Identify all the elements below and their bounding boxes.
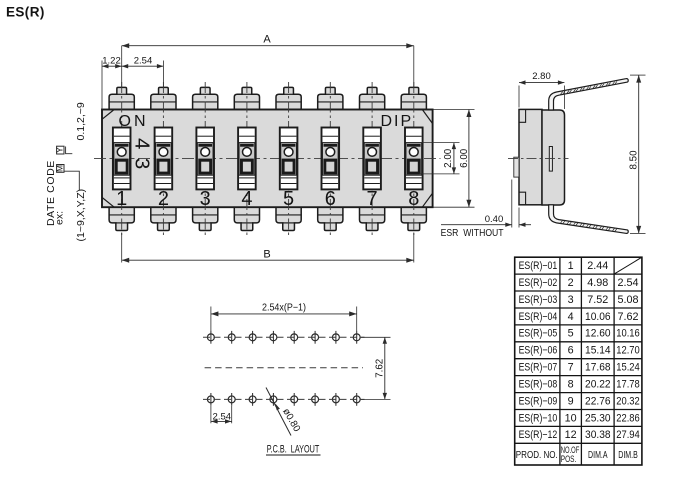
svg-text:10.16: 10.16 <box>616 328 640 340</box>
svg-text:ES(R)−01: ES(R)−01 <box>519 260 558 272</box>
svg-text:22.86: 22.86 <box>616 412 640 424</box>
svg-text:ES(R)−07: ES(R)−07 <box>519 362 558 374</box>
svg-text:10: 10 <box>565 412 577 424</box>
svg-text:4.98: 4.98 <box>587 277 608 289</box>
svg-text:12: 12 <box>565 429 577 441</box>
svg-text:8: 8 <box>568 378 574 390</box>
svg-text:ES(R): ES(R) <box>6 5 45 20</box>
svg-text:7.52: 7.52 <box>587 294 608 306</box>
svg-text:3: 3 <box>200 188 211 210</box>
svg-text:2.54: 2.54 <box>617 277 638 289</box>
svg-text:43: 43 <box>131 138 154 178</box>
svg-text:1: 1 <box>116 188 127 210</box>
svg-text:2.44: 2.44 <box>587 260 608 272</box>
svg-text:1: 1 <box>568 260 574 272</box>
svg-text:DIM.A: DIM.A <box>588 450 608 461</box>
svg-text:0.1,2,~9: 0.1,2,~9 <box>75 102 87 140</box>
svg-text:7.62: 7.62 <box>374 359 385 378</box>
svg-text:ES(R)−02: ES(R)−02 <box>519 277 558 289</box>
svg-text:ESR WITHOUT: ESR WITHOUT <box>441 227 504 239</box>
svg-text:8: 8 <box>408 188 419 210</box>
svg-text:5: 5 <box>568 328 574 340</box>
svg-text:30.38: 30.38 <box>585 429 611 441</box>
svg-text:1.22: 1.22 <box>102 56 121 67</box>
svg-text:6: 6 <box>325 188 336 210</box>
svg-text:2: 2 <box>568 277 574 289</box>
svg-text:5.08: 5.08 <box>617 294 638 306</box>
svg-text:M: M <box>55 165 65 172</box>
svg-text:27.94: 27.94 <box>616 429 640 441</box>
svg-text:(1~9,X,Y,Z): (1~9,X,Y,Z) <box>75 189 87 242</box>
svg-text:9: 9 <box>568 395 574 407</box>
svg-text:12.70: 12.70 <box>616 345 640 357</box>
svg-text:6: 6 <box>568 345 574 357</box>
svg-text:ES(R)−06: ES(R)−06 <box>519 345 558 357</box>
svg-text:ES(R)−10: ES(R)−10 <box>519 412 558 424</box>
svg-text:7.62: 7.62 <box>617 311 638 323</box>
svg-text:PROD. NO.: PROD. NO. <box>516 450 558 461</box>
svg-text:17.78: 17.78 <box>616 378 640 390</box>
svg-text:22.76: 22.76 <box>585 395 611 407</box>
svg-text:P.C.B. LAYOUT: P.C.B. LAYOUT <box>267 444 320 456</box>
svg-text:15.24: 15.24 <box>616 362 640 374</box>
svg-text:0.40: 0.40 <box>485 214 504 225</box>
svg-text:20.22: 20.22 <box>585 378 611 390</box>
svg-text:POS.: POS. <box>561 454 577 465</box>
svg-text:10.06: 10.06 <box>585 311 611 323</box>
svg-text:ES(R)−12: ES(R)−12 <box>519 429 558 441</box>
svg-text:2.54: 2.54 <box>213 412 232 423</box>
svg-text:7: 7 <box>367 188 378 210</box>
svg-text:4: 4 <box>568 311 574 323</box>
svg-text:4: 4 <box>241 188 252 210</box>
svg-text:A: A <box>263 34 271 46</box>
svg-text:8.50: 8.50 <box>629 150 640 170</box>
svg-text:ES(R)−05: ES(R)−05 <box>519 328 558 340</box>
svg-text:Y: Y <box>55 147 65 153</box>
svg-text:2: 2 <box>158 188 169 210</box>
svg-text:ES(R)−09: ES(R)−09 <box>519 395 558 407</box>
svg-text:B: B <box>263 248 270 260</box>
svg-text:DIM.B: DIM.B <box>618 450 638 461</box>
svg-text:15.14: 15.14 <box>585 345 611 357</box>
svg-text:ex:: ex: <box>54 211 66 225</box>
svg-text:ES(R)−04: ES(R)−04 <box>519 311 558 323</box>
svg-text:ON: ON <box>119 113 149 130</box>
svg-text:5: 5 <box>283 188 294 210</box>
svg-text:7: 7 <box>568 362 574 374</box>
svg-text:20.32: 20.32 <box>616 395 640 407</box>
svg-text:2.54: 2.54 <box>134 56 153 67</box>
svg-text:2.80: 2.80 <box>532 71 551 82</box>
svg-text:DIP: DIP <box>381 113 414 130</box>
svg-text:2.00: 2.00 <box>443 148 454 168</box>
svg-text:3: 3 <box>568 294 574 306</box>
svg-text:ES(R)−08: ES(R)−08 <box>519 378 558 390</box>
svg-text:17.68: 17.68 <box>585 362 611 374</box>
svg-text:12.60: 12.60 <box>585 328 611 340</box>
svg-text:2.54x(P−1): 2.54x(P−1) <box>262 302 306 313</box>
svg-text:6.00: 6.00 <box>459 148 470 168</box>
svg-text:25.30: 25.30 <box>585 412 611 424</box>
svg-text:ES(R)−03: ES(R)−03 <box>519 294 558 306</box>
